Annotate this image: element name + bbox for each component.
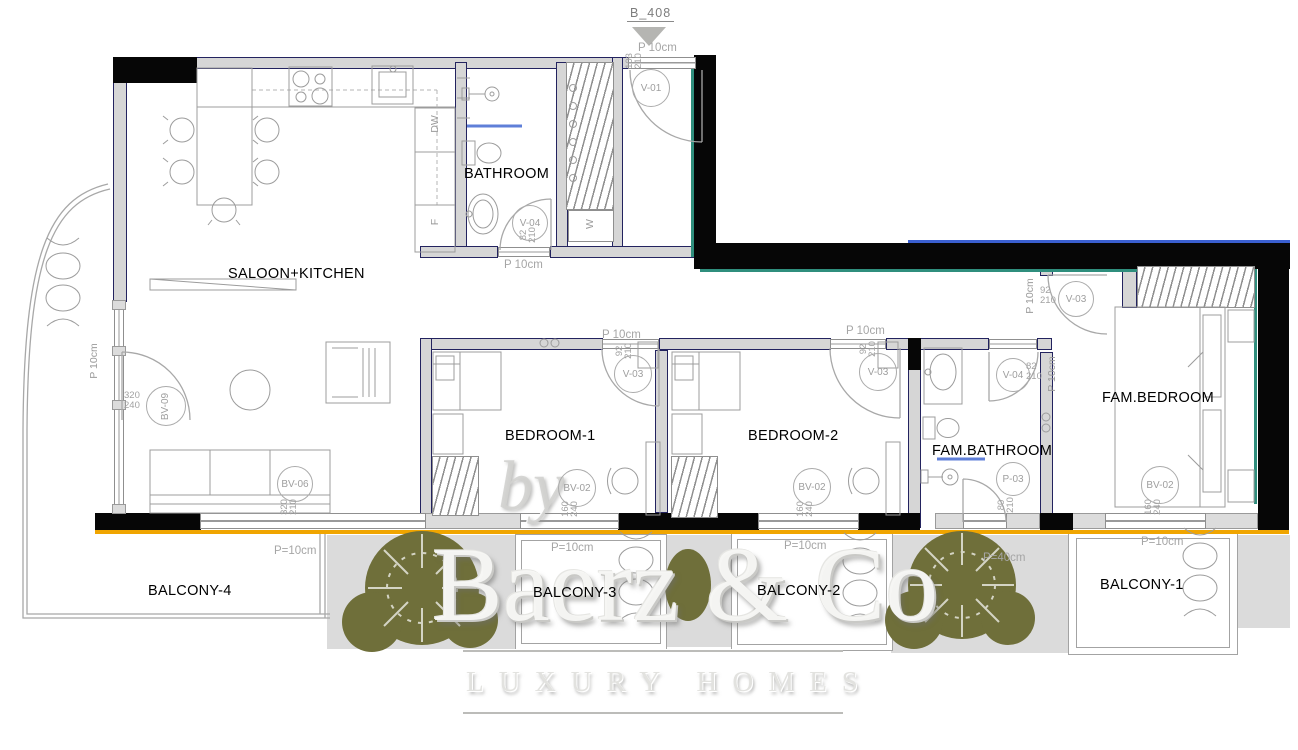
watermark-brand: Baerz & Co [432, 532, 938, 638]
door-tag-v03-fam: V-03 [1058, 281, 1094, 317]
window-dims-bv02-fam: 160240 [1144, 499, 1162, 515]
wall [113, 68, 127, 302]
dishwasher-label: DW [429, 102, 441, 146]
wall [908, 350, 921, 528]
wall [886, 338, 989, 350]
nightstand-fam-1 [1228, 310, 1254, 342]
coffee-table [230, 370, 270, 410]
room-label-bedroom2: BEDROOM-2 [748, 428, 839, 444]
chair-bedroom1 [612, 468, 638, 494]
stove [289, 67, 332, 106]
bed-bedroom2 [672, 352, 740, 410]
dresser-bedroom1 [433, 414, 463, 454]
closet-hatch [566, 62, 614, 210]
room-label-balcony4: BALCONY-4 [148, 583, 232, 599]
chair-bedroom2 [853, 468, 879, 494]
parapet-label: P=10cm [784, 540, 827, 552]
shower-head [485, 87, 499, 101]
watermark-by: by [498, 452, 564, 522]
wardrobe-hatch-bedroom1 [432, 456, 479, 516]
blue-accent-line [908, 240, 1290, 243]
window-bv02-fam-bedroom [1105, 513, 1206, 529]
bed-bedroom1 [433, 352, 501, 410]
room-label-fam-bathroom: FAM.BATHROOM [932, 443, 1052, 459]
wall-black [1040, 513, 1073, 530]
room-label-saloon: SALOON+KITCHEN [228, 266, 365, 282]
wardrobe-hatch-bedroom2 [671, 456, 718, 518]
window-sill [1205, 513, 1258, 529]
floor-plan: by Baerz & Co LUXURY HOMES B_408 SALOON+… [0, 0, 1298, 750]
door-v04-threshold-fam [989, 339, 1037, 349]
door-tag-v01: V-01 [632, 69, 670, 107]
wall-black [908, 338, 921, 370]
wardrobe-hatch-fam-bedroom [1137, 266, 1255, 308]
door-dims-v03-bedroom2: 92210 [859, 341, 877, 357]
wall [655, 350, 668, 513]
window-dims-bv02-bedroom2: 160240 [796, 501, 814, 517]
parapet-label: P 10cm [602, 329, 641, 341]
window-sill [1072, 513, 1106, 529]
door-dims-p03: 80210 [997, 497, 1015, 513]
wall-black [1258, 243, 1289, 531]
window-mullion [112, 300, 126, 310]
window-tag-bv06: BV-06 [277, 466, 313, 502]
room-label-fam-bedroom: FAM.BEDROOM [1102, 390, 1214, 406]
parapet-label: P 10cm [88, 339, 100, 383]
fam-toilet [923, 417, 935, 439]
watermark-tagline: LUXURY HOMES [466, 666, 873, 699]
wall-black [694, 55, 716, 255]
kitchen-sink [372, 66, 413, 104]
watermark-divider [463, 712, 843, 714]
wall [1037, 338, 1052, 350]
window-bv06 [200, 513, 426, 529]
parapet-label: P=10cm [1141, 536, 1184, 548]
teal-accent-line [700, 269, 1137, 272]
parapet-label: P 10cm [504, 259, 543, 271]
wall [550, 246, 702, 258]
watermark-divider [463, 650, 843, 652]
fam-shower-head [942, 469, 958, 485]
door-dims-v03-bedroom1: 92210 [615, 343, 633, 359]
door-dims-v01: 103210 [625, 53, 643, 69]
dresser-bedroom2 [672, 414, 702, 454]
dining-table [197, 68, 252, 205]
door-dims-v04-bathroom: 82210 [519, 227, 537, 243]
unit-number-label: B_408 [627, 6, 674, 22]
door-p03-threshold [963, 513, 1007, 529]
parapet-label: P=40cm [983, 552, 1026, 564]
window-dims-bv06: 320210 [280, 499, 298, 515]
nightstand-fam-2 [1228, 470, 1254, 502]
parapet-label: P 10cm [1024, 274, 1036, 318]
bathroom-sink [468, 194, 498, 234]
door-dims-v03-fam: 92210 [1040, 286, 1056, 306]
balcony-1-outline-inner [1076, 538, 1230, 648]
wall-black [113, 57, 197, 83]
room-label-bathroom: BATHROOM [464, 166, 549, 182]
room-label-bedroom1: BEDROOM-1 [505, 428, 596, 444]
parapet-label: P 10cm [1046, 352, 1058, 396]
door-v04-threshold [498, 247, 550, 257]
armchair [326, 342, 390, 403]
fridge-label: F [429, 200, 441, 244]
door-dims-v04-fam: 82210 [1026, 362, 1042, 382]
parapet-label: P=10cm [274, 545, 317, 557]
window-mullion [112, 346, 126, 356]
parapet-label: P 10cm [846, 325, 885, 337]
room-label-balcony3: BALCONY-3 [533, 585, 617, 601]
door-tag-p03: P-03 [996, 462, 1030, 496]
room-label-balcony2: BALCONY-2 [757, 583, 841, 599]
fam-vanity [924, 348, 962, 404]
door-tag-v03-bedroom2: V-03 [859, 353, 897, 391]
door-tag-v03-bedroom1: V-03 [614, 355, 652, 393]
wall [420, 338, 603, 350]
wall-black [95, 513, 201, 530]
window-dims-bv09: 320240 [124, 391, 140, 411]
window-sill [1006, 513, 1040, 529]
wall [455, 62, 467, 254]
washer-label: W [584, 202, 596, 246]
window-mullion [112, 504, 126, 514]
window-sill [935, 513, 964, 529]
window-dims-bv02-bedroom1: 160240 [561, 501, 579, 517]
desk-bedroom2 [886, 442, 900, 515]
wall [659, 338, 831, 350]
room-label-balcony1: BALCONY-1 [1100, 577, 1184, 593]
door-tag-v04-fam: V-04 [996, 358, 1030, 392]
wall [420, 338, 432, 528]
teal-accent-line [691, 57, 694, 257]
window-tag-bv09: BV-09 [146, 386, 186, 426]
wall [420, 246, 498, 258]
parapet-label: P=10cm [551, 542, 594, 554]
